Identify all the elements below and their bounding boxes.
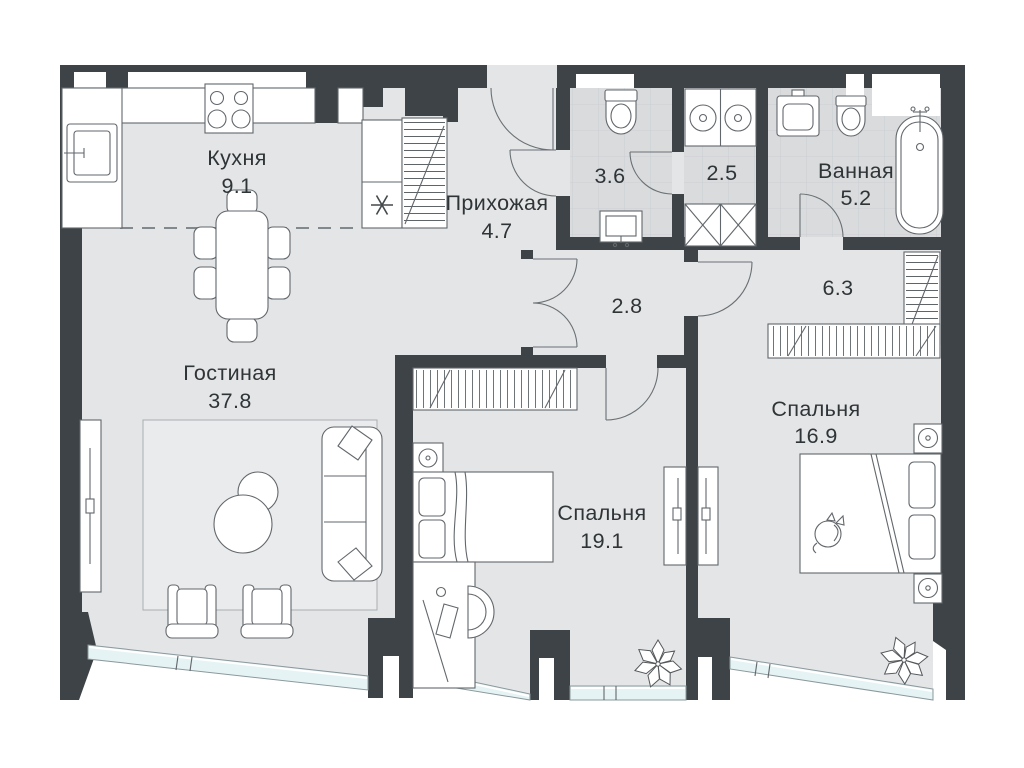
bathroom-label: Ванная — [818, 159, 894, 183]
armchair — [241, 585, 293, 638]
tv-console-living — [80, 420, 101, 592]
bedroom-2-label: Спальня — [771, 397, 860, 421]
hallway-label: Прихожая — [446, 191, 549, 215]
bedroom-1-label: Спальня — [557, 501, 646, 525]
dressing-area: 6.3 — [822, 276, 853, 300]
washing-machines — [685, 89, 756, 146]
kitchen-area: 9.1 — [221, 174, 252, 198]
bathroom-area: 5.2 — [840, 186, 871, 210]
nightstand-lamp — [914, 424, 942, 453]
kitchen-wardrobe — [402, 118, 447, 228]
stove — [205, 84, 253, 133]
bathroom-toilet — [836, 96, 866, 136]
living-area: 37.8 — [208, 389, 251, 413]
bed — [413, 472, 553, 562]
laundry-area: 2.5 — [706, 161, 737, 185]
tall-cabinet — [362, 120, 402, 228]
tv-console-bedroom-2 — [698, 467, 718, 565]
nightstand-lamp — [914, 574, 942, 603]
hallway-area: 4.7 — [481, 219, 512, 243]
bathtub — [896, 107, 943, 234]
bed — [800, 454, 941, 573]
kitchen-cabinet-top — [338, 88, 363, 123]
living-label: Гостиная — [183, 361, 276, 385]
desk — [413, 562, 475, 688]
bathroom-sink — [777, 90, 819, 136]
kitchen-label: Кухня — [207, 146, 267, 170]
dining-table — [216, 211, 268, 319]
bedroom-2-area: 16.9 — [794, 424, 837, 448]
entrance-opening — [487, 65, 557, 88]
wc-sink — [600, 211, 642, 247]
armchair — [166, 585, 218, 638]
sofa — [322, 426, 382, 581]
floor-plan: Кухня 9.1 Прихожая 4.7 3.6 2.5 Ванная 5.… — [0, 0, 1024, 768]
floor-plan-page: Кухня 9.1 Прихожая 4.7 3.6 2.5 Ванная 5.… — [0, 0, 1024, 768]
bedroom-1-window — [570, 686, 686, 700]
toilet — [605, 90, 637, 134]
dressing-wardrobe-bottom — [768, 324, 940, 358]
bedroom-1-wardrobe — [413, 368, 577, 410]
laundry-cabinet — [685, 204, 756, 246]
corridor-area: 2.8 — [611, 294, 642, 318]
nightstand-lamp — [413, 443, 443, 473]
wc-area: 3.6 — [594, 164, 625, 188]
bedroom-1-area: 19.1 — [580, 529, 623, 553]
kitchen-sink — [62, 88, 122, 228]
tv-console-bedroom-1 — [664, 467, 686, 565]
